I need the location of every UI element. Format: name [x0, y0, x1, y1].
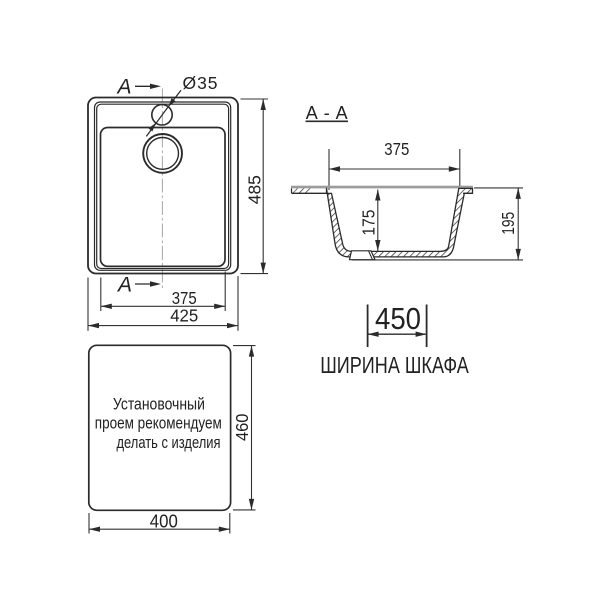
- svg-text:195: 195: [498, 212, 518, 235]
- svg-text:175: 175: [359, 210, 379, 236]
- svg-text:Установочный: Установочный: [113, 394, 205, 413]
- svg-text:425: 425: [170, 306, 198, 326]
- svg-text:проем рекомендуем: проем рекомендуем: [95, 414, 222, 433]
- svg-text:ШИРИНА ШКАФА: ШИРИНА ШКАФА: [320, 352, 469, 378]
- svg-text:400: 400: [150, 512, 178, 532]
- svg-text:460: 460: [232, 413, 252, 441]
- svg-text:A: A: [116, 274, 132, 297]
- svg-text:Ø35: Ø35: [183, 73, 218, 93]
- svg-text:375: 375: [384, 139, 409, 159]
- svg-text:A-A: A-A: [306, 103, 348, 123]
- svg-text:делать с изделия: делать с изделия: [117, 433, 221, 452]
- svg-text:450: 450: [375, 301, 421, 336]
- svg-text:485: 485: [245, 175, 265, 204]
- svg-text:A: A: [116, 76, 132, 99]
